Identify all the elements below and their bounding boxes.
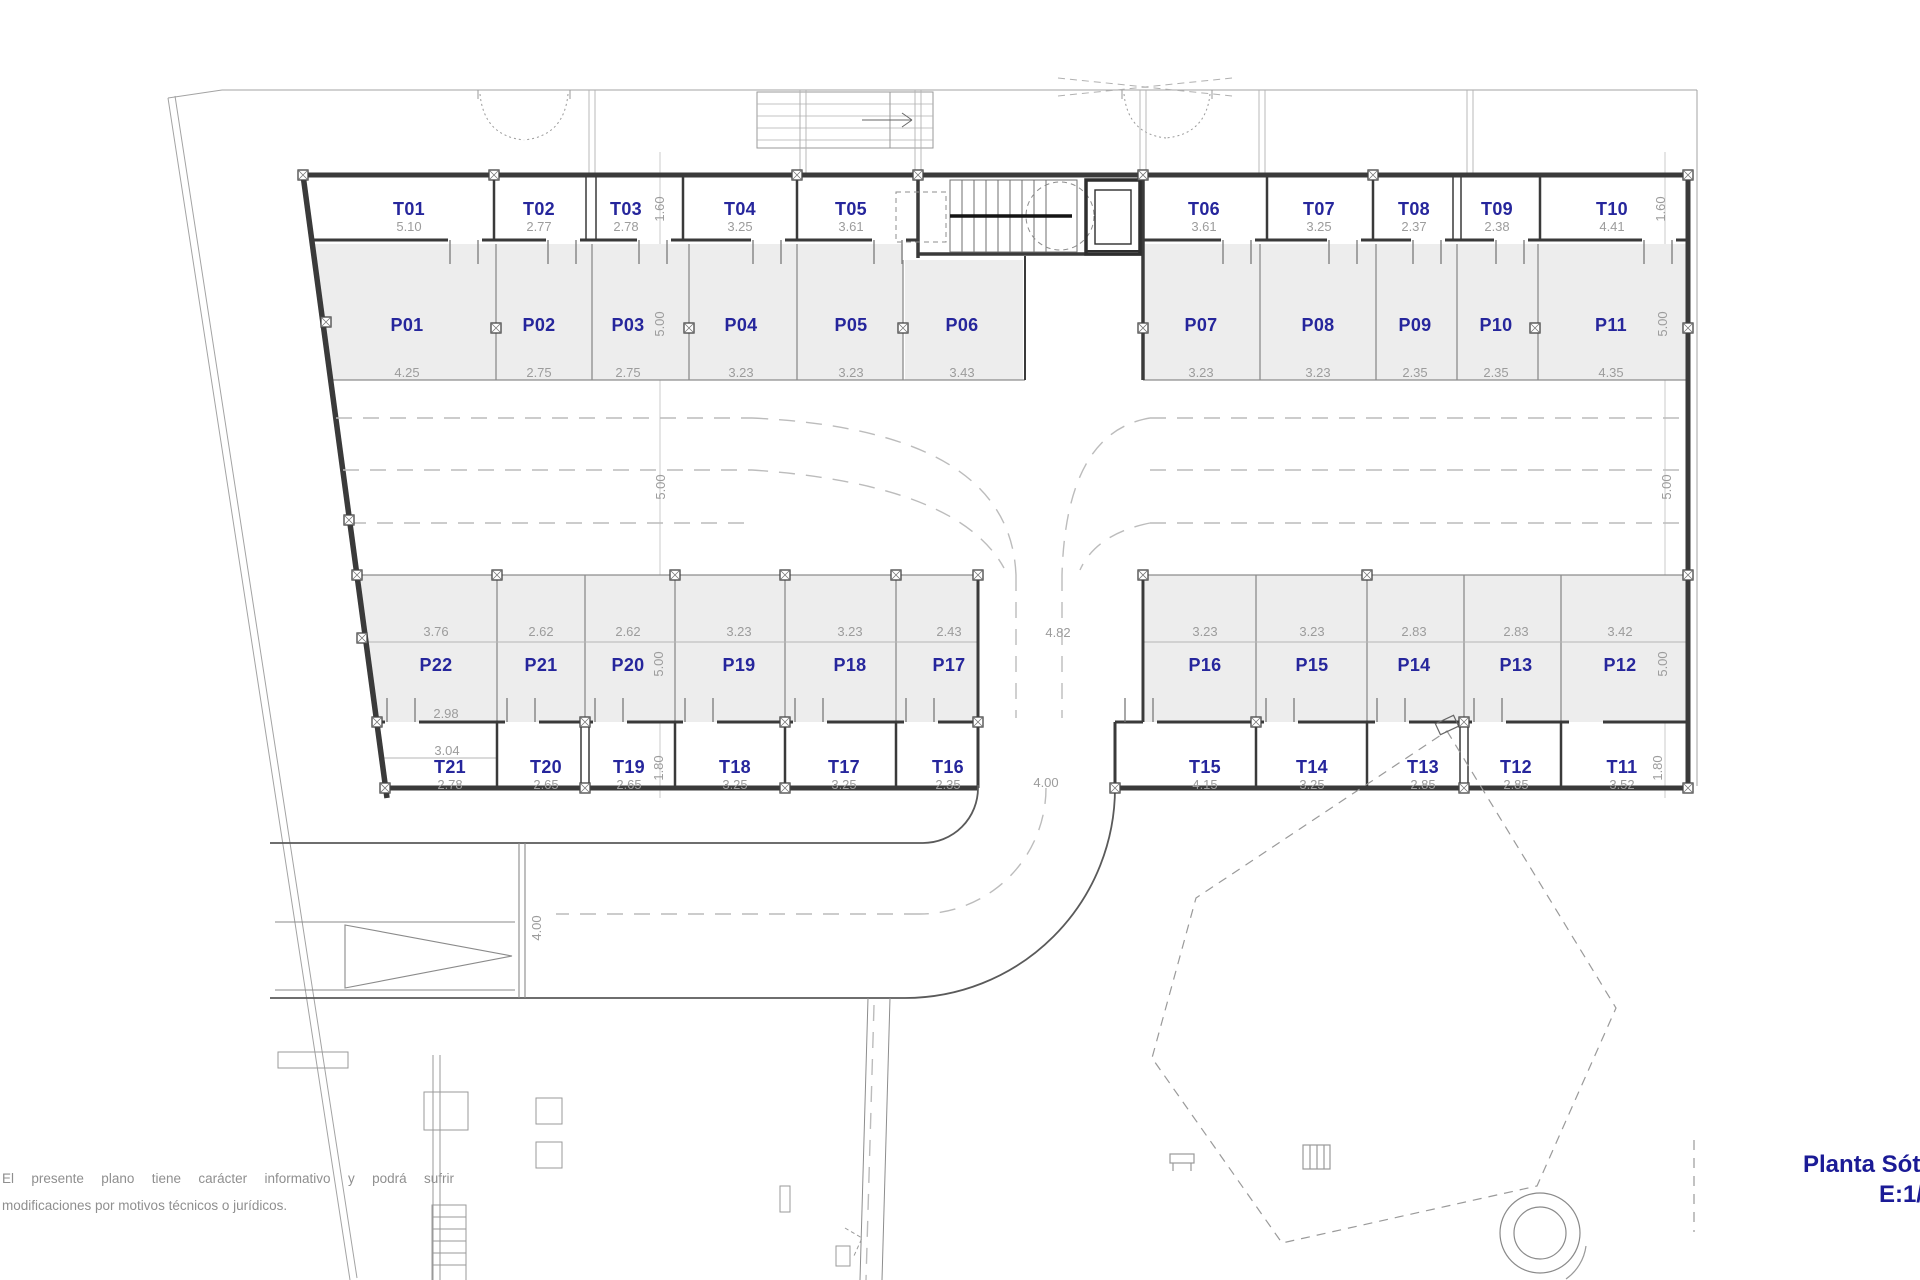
dim-p22-lower: 2.98 bbox=[433, 707, 458, 721]
parking-cell-p02: P022.75 bbox=[523, 315, 556, 380]
disclaimer-note: El presente plano tiene carácter informa… bbox=[2, 1165, 454, 1219]
storage-cell-t14: T143.25 bbox=[1296, 757, 1328, 792]
parking-cell-p21: 2.62P21 bbox=[525, 624, 558, 675]
dim-parking-depth-top-left: 5.00 bbox=[653, 311, 667, 336]
storage-cell-t17: T173.25 bbox=[828, 757, 860, 792]
storage-cell-t19: T192.65 bbox=[613, 757, 645, 792]
disclaimer-line1: El presente plano tiene carácter informa… bbox=[2, 1165, 454, 1192]
disclaimer-line2: modificaciones por motivos técnicos o ju… bbox=[2, 1192, 454, 1219]
storage-cell-t06: T063.61 bbox=[1188, 199, 1220, 234]
dim-aisle-width-right: 5.00 bbox=[1660, 474, 1674, 499]
dim-parking-depth-top-right: 5.00 bbox=[1656, 311, 1670, 336]
stairs bbox=[896, 180, 1094, 252]
parking-cell-p17: 2.43P17 bbox=[933, 624, 966, 675]
stall-front-lines bbox=[331, 380, 1686, 575]
parking-cell-p01: P014.25 bbox=[391, 315, 424, 380]
storage-cell-t18: T183.25 bbox=[719, 757, 751, 792]
entrance-doors bbox=[478, 90, 1212, 140]
driveway-markings bbox=[336, 418, 1682, 1280]
storage-cell-t21: T212.78 bbox=[434, 757, 466, 792]
storage-cell-t02: T022.77 bbox=[523, 199, 555, 234]
parking-cell-p19: 3.23P19 bbox=[723, 624, 756, 675]
dim-parking-depth-bottom-left: 5.00 bbox=[652, 651, 666, 676]
dim-t21-upper: 3.04 bbox=[434, 744, 459, 758]
expansion-joints bbox=[589, 90, 1473, 175]
plan-title: Planta Sótano E:1/150 bbox=[1758, 1150, 1920, 1210]
parking-cell-p06: P063.43 bbox=[946, 315, 979, 380]
dim-storage-depth-bottom-left: 1.80 bbox=[652, 755, 666, 780]
parking-cell-p08: P083.23 bbox=[1302, 315, 1335, 380]
dim-storage-depth-top-right: 1.60 bbox=[1654, 196, 1668, 221]
storage-cell-t10: T104.41 bbox=[1596, 199, 1628, 234]
storage-cell-t04: T043.25 bbox=[724, 199, 756, 234]
parking-cell-p16: 3.23P16 bbox=[1189, 624, 1222, 675]
dim-storage-depth-top-left: 1.60 bbox=[653, 196, 667, 221]
entry-steps bbox=[757, 92, 933, 148]
storage-cell-t09: T092.38 bbox=[1481, 199, 1513, 234]
storage-cell-t12: T122.85 bbox=[1500, 757, 1532, 792]
dim-parking-depth-bottom-right: 5.00 bbox=[1656, 651, 1670, 676]
parking-cell-p09: P092.35 bbox=[1399, 315, 1432, 380]
storage-cell-t08: T082.37 bbox=[1398, 199, 1430, 234]
storage-cell-t20: T202.65 bbox=[530, 757, 562, 792]
parking-cell-p15: 3.23P15 bbox=[1296, 624, 1329, 675]
plan-scale: E:1/150 bbox=[1758, 1180, 1920, 1210]
parking-cell-p14: 2.83P14 bbox=[1398, 624, 1431, 675]
parking-cell-p10: P102.35 bbox=[1480, 315, 1513, 380]
dim-ramp-width: 4.00 bbox=[530, 915, 544, 940]
dim-storage-depth-bottom-right: 1.80 bbox=[1651, 755, 1665, 780]
floor-plan-canvas: T015.10 T022.77 T032.78 T043.25 T053.61 … bbox=[0, 0, 1920, 1280]
landscape-boundary bbox=[1152, 715, 1694, 1279]
storage-cell-t07: T073.25 bbox=[1303, 199, 1335, 234]
parking-cell-p07: P073.23 bbox=[1185, 315, 1218, 380]
plan-title-line1: Planta Sótano bbox=[1758, 1150, 1920, 1180]
parking-cell-p20: 2.62P20 bbox=[612, 624, 645, 675]
parking-cell-p22: 3.76P22 bbox=[420, 624, 453, 675]
parking-cell-p04: P043.23 bbox=[725, 315, 758, 380]
parking-cell-p18: 3.23P18 bbox=[834, 624, 867, 675]
parking-cell-p13: 2.83P13 bbox=[1500, 624, 1533, 675]
ramp-arrow bbox=[275, 843, 525, 998]
storage-cell-t03: T032.78 bbox=[610, 199, 642, 234]
storage-cell-t16: T162.35 bbox=[932, 757, 964, 792]
parking-cell-p03: P032.75 bbox=[612, 315, 645, 380]
parking-cell-p12: 3.42P12 bbox=[1604, 624, 1637, 675]
parking-cell-p05: P053.23 bbox=[835, 315, 868, 380]
storage-cell-t01: T015.10 bbox=[393, 199, 425, 234]
dim-exit-width: 4.00 bbox=[1033, 776, 1058, 790]
top-dashed-lines bbox=[1058, 78, 1232, 96]
dim-mid-gap: 4.82 bbox=[1045, 626, 1070, 640]
storage-cell-t11: T113.52 bbox=[1607, 757, 1638, 792]
parking-cell-p11: P114.35 bbox=[1595, 315, 1627, 380]
storage-cell-t15: T154.15 bbox=[1189, 757, 1221, 792]
dim-aisle-width-left: 5.00 bbox=[654, 474, 668, 499]
storage-cell-t13: T132.85 bbox=[1407, 757, 1439, 792]
storage-cell-t05: T053.61 bbox=[835, 199, 867, 234]
